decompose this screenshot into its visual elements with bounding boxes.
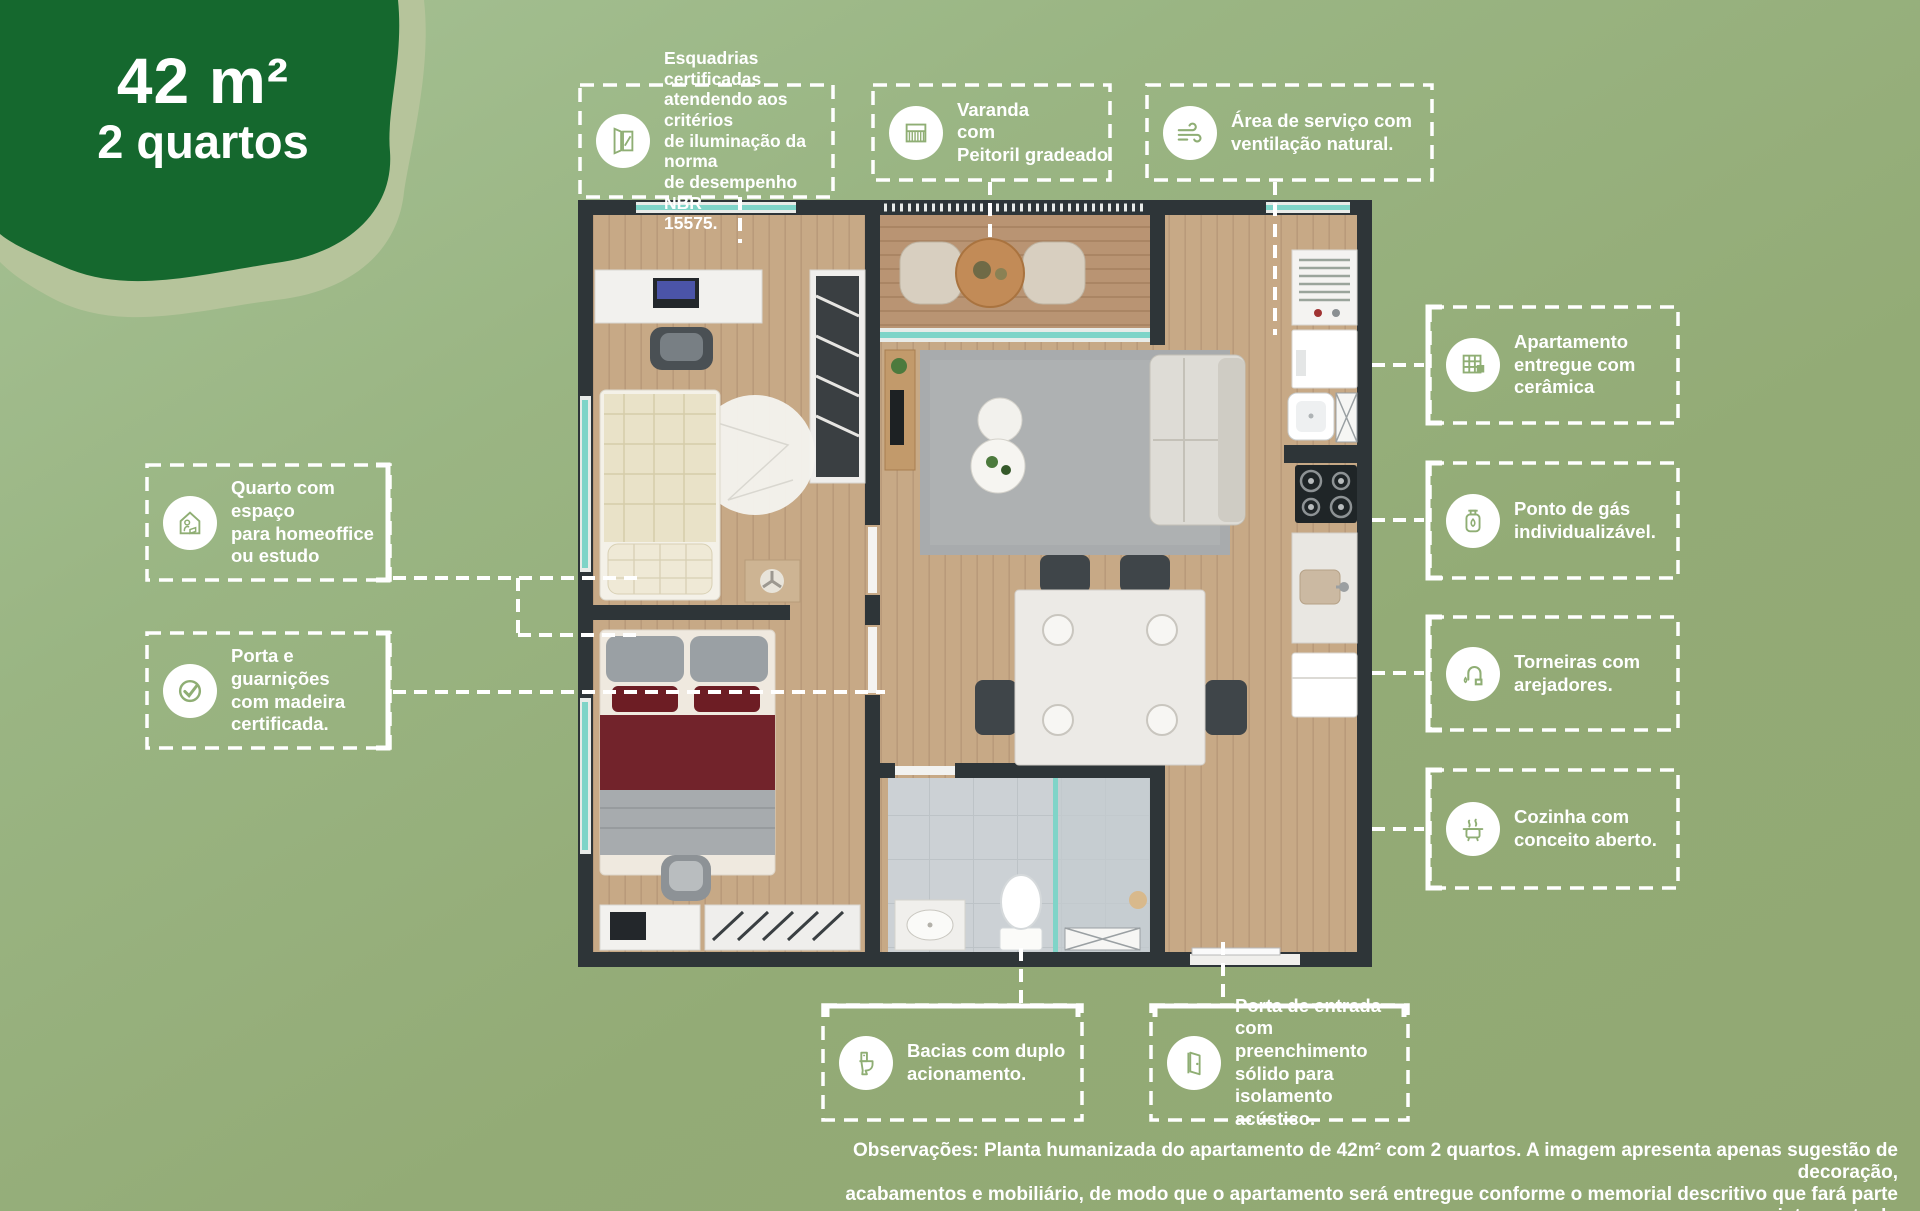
callout-torneiras: Torneiras com arejadores.: [1430, 617, 1678, 730]
callout-text: Ponto de gás individualizável.: [1514, 498, 1656, 543]
callout-varanda: Varanda com Peitoril gradeado: [873, 85, 1110, 180]
window-icon: [596, 114, 650, 168]
door-icon: [1167, 1036, 1221, 1090]
railing-icon: [889, 106, 943, 160]
gas-cylinder-icon: [1446, 494, 1500, 548]
callout-porta-entrada: Porta de entrada com preenchimento sólid…: [1151, 1005, 1408, 1120]
callout-ceramica: Apartamento entregue com cerâmica: [1430, 307, 1678, 423]
callout-gas: Ponto de gás individualizável.: [1430, 463, 1678, 578]
callout-quarto-homeoffice: Quarto com espaço para homeoffice ou est…: [147, 465, 390, 580]
area-badge: 42 m² 2 quartos: [28, 48, 378, 169]
callout-area-servico: Área de serviço com ventilação natural.: [1147, 85, 1432, 180]
callout-cozinha: Cozinha com conceito aberto.: [1430, 770, 1678, 888]
faucet-icon: [1446, 647, 1500, 701]
floor-plan: [578, 200, 1372, 967]
apartment-rooms: 2 quartos: [28, 115, 378, 169]
callout-text: Apartamento entregue com cerâmica: [1514, 331, 1635, 399]
callout-text: Porta e guarnições com madeira certifica…: [231, 645, 390, 735]
callout-text: Área de serviço com ventilação natural.: [1231, 110, 1412, 155]
tiles-icon: [1446, 338, 1500, 392]
callout-text: Varanda com Peitoril gradeado: [957, 99, 1108, 167]
callout-porta-madeira: Porta e guarnições com madeira certifica…: [147, 633, 390, 748]
apartment-area: 42 m²: [28, 48, 378, 115]
homeoffice-icon: [163, 496, 217, 550]
callout-esquadrias: Esquadrias certificadas atendendo aos cr…: [580, 85, 833, 197]
disclaimer-text: Observações: Planta humanizada do aparta…: [778, 1140, 1898, 1211]
infographic: 42 m² 2 quartos Esquadrias certificadas …: [0, 0, 1920, 1211]
callout-bacias: Bacias com duplo acionamento.: [823, 1005, 1082, 1120]
check-icon: [163, 664, 217, 718]
wind-icon: [1163, 106, 1217, 160]
callout-text: Torneiras com arejadores.: [1514, 651, 1640, 696]
callout-text: Porta de entrada com preenchimento sólid…: [1235, 995, 1408, 1130]
pot-icon: [1446, 802, 1500, 856]
callout-text: Quarto com espaço para homeoffice ou est…: [231, 477, 390, 567]
callout-text: Bacias com duplo acionamento.: [907, 1040, 1065, 1085]
callout-text: Esquadrias certificadas atendendo aos cr…: [664, 48, 833, 234]
callout-text: Cozinha com conceito aberto.: [1514, 806, 1657, 851]
toilet-icon: [839, 1036, 893, 1090]
